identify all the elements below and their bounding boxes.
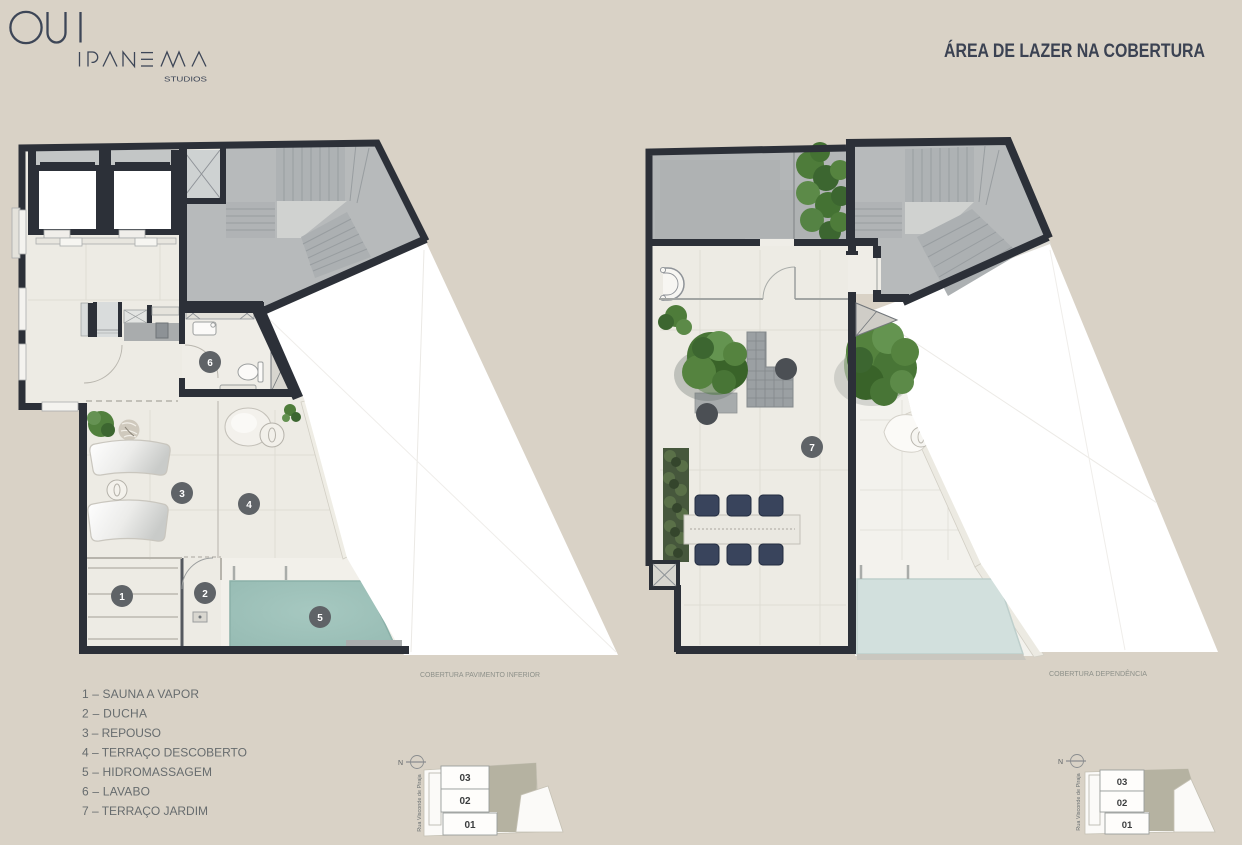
svg-text:2 – DUCHA: 2 – DUCHA <box>82 707 147 721</box>
svg-text:ÁREA DE LAZER NA COBERTURA: ÁREA DE LAZER NA COBERTURA <box>944 40 1205 62</box>
svg-text:1: 1 <box>119 592 125 603</box>
svg-text:4 – TERRAÇO DESCOBERTO: 4 – TERRAÇO DESCOBERTO <box>82 746 247 760</box>
svg-text:01: 01 <box>1122 820 1133 831</box>
svg-text:3: 3 <box>179 489 185 500</box>
svg-text:7: 7 <box>809 443 815 454</box>
svg-text:03: 03 <box>459 773 471 784</box>
svg-text:Rua Visconde de Piraja: Rua Visconde de Piraja <box>1076 772 1082 830</box>
svg-text:02: 02 <box>459 796 471 807</box>
svg-text:02: 02 <box>1117 798 1128 809</box>
svg-text:5: 5 <box>317 613 323 624</box>
svg-text:4: 4 <box>246 500 252 511</box>
svg-text:6: 6 <box>207 358 213 369</box>
svg-text:3 – REPOUSO: 3 – REPOUSO <box>82 726 161 740</box>
svg-text:7 – TERRAÇO JARDIM: 7 – TERRAÇO JARDIM <box>82 804 208 818</box>
svg-text:5 – HIDROMASSAGEM: 5 – HIDROMASSAGEM <box>82 765 212 779</box>
svg-text:01: 01 <box>464 820 476 831</box>
svg-text:COBERTURA DEPENDÊNCIA: COBERTURA DEPENDÊNCIA <box>1049 669 1147 678</box>
svg-text:N: N <box>398 760 403 767</box>
svg-text:6 – LAVABO: 6 – LAVABO <box>82 785 150 799</box>
svg-text:N: N <box>1058 759 1063 766</box>
svg-text:STUDIOS: STUDIOS <box>164 75 207 84</box>
svg-text:COBERTURA PAVIMENTO INFERIOR: COBERTURA PAVIMENTO INFERIOR <box>420 670 541 679</box>
svg-text:Rua Visconde de Piraja: Rua Visconde de Piraja <box>417 773 423 831</box>
svg-text:1 – SAUNA A VAPOR: 1 – SAUNA A VAPOR <box>82 687 199 701</box>
svg-text:2: 2 <box>202 589 208 600</box>
svg-text:03: 03 <box>1117 777 1128 788</box>
